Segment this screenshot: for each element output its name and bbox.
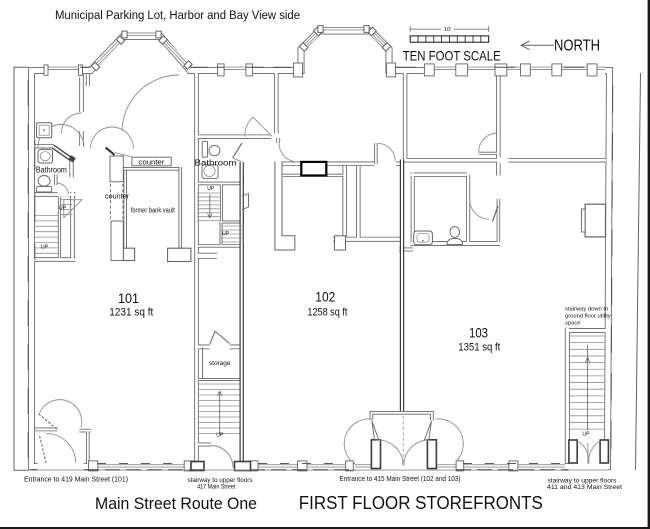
svg-text:NORTH: NORTH: [554, 38, 600, 55]
svg-text:UP: UP: [582, 432, 590, 438]
svg-text:ground floor utility: ground floor utility: [565, 314, 611, 320]
svg-text:1231 sq ft: 1231 sq ft: [109, 307, 153, 319]
svg-text:counter: counter: [105, 193, 130, 200]
svg-text:UP: UP: [59, 206, 67, 212]
svg-text:1258 sq ft: 1258 sq ft: [307, 307, 347, 319]
svg-text:UP: UP: [216, 433, 224, 439]
svg-text:Entrance to 419 Main Street (1: Entrance to 419 Main Street (101): [24, 475, 128, 484]
svg-text:Municipal Parking Lot, Harbor: Municipal Parking Lot, Harbor and Bay Vi…: [55, 8, 300, 22]
svg-text:stairway down to: stairway down to: [565, 307, 608, 313]
svg-text:TEN FOOT SCALE: TEN FOOT SCALE: [403, 47, 501, 63]
svg-text:Bathroom: Bathroom: [195, 159, 237, 168]
svg-text:101: 101: [118, 291, 139, 306]
svg-text:Main Street Route One: Main Street Route One: [95, 495, 257, 513]
svg-text:10': 10': [444, 27, 451, 33]
svg-text:Entrance to 415 Main Street (1: Entrance to 415 Main Street (102 and 103…: [340, 474, 461, 483]
svg-text:former bank vault: former bank vault: [131, 206, 176, 215]
svg-text:417 Main Street: 417 Main Street: [197, 483, 235, 490]
svg-text:storage: storage: [209, 360, 231, 367]
svg-text:FIRST FLOOR STOREFRONTS: FIRST FLOOR STOREFRONTS: [299, 492, 543, 513]
svg-text:411 and 413 Main Street: 411 and 413 Main Street: [547, 484, 622, 491]
svg-text:UP: UP: [41, 245, 49, 251]
svg-text:1351 sq ft: 1351 sq ft: [458, 342, 500, 354]
svg-text:UP: UP: [207, 186, 215, 192]
svg-text:Bathroom: Bathroom: [36, 166, 67, 175]
svg-text:103: 103: [469, 326, 488, 341]
svg-text:102: 102: [315, 290, 335, 305]
svg-text:UP: UP: [222, 231, 230, 237]
svg-text:counter: counter: [139, 159, 166, 166]
svg-text:space: space: [565, 321, 580, 327]
